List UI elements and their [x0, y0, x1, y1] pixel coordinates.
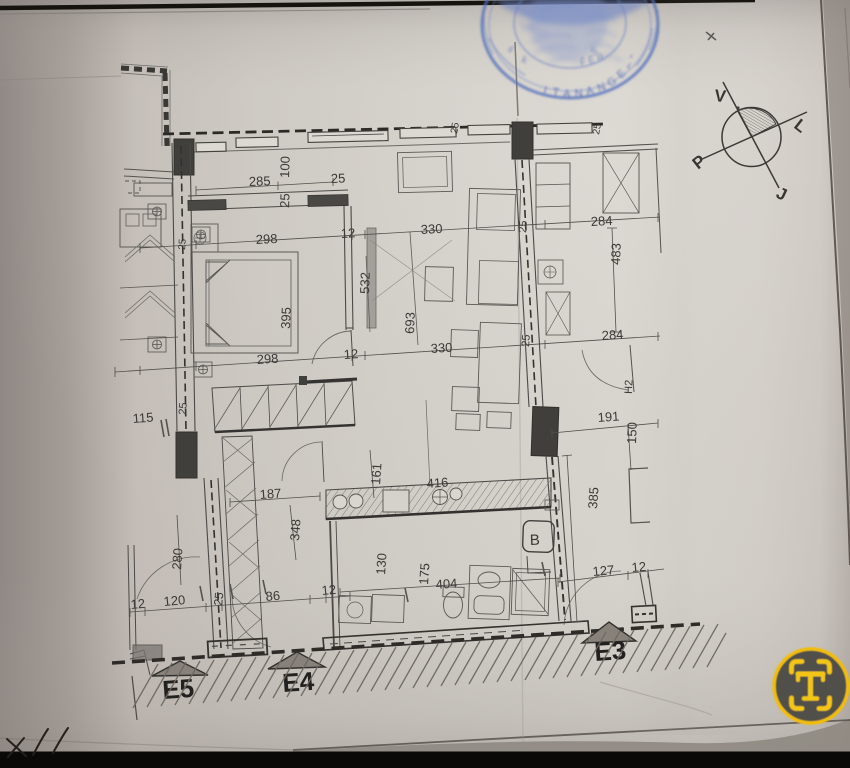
- svg-text:H2: H2: [623, 380, 635, 394]
- svg-text:115: 115: [132, 410, 154, 426]
- svg-text:298: 298: [255, 231, 277, 247]
- svg-text:348: 348: [287, 519, 303, 542]
- svg-text:385: 385: [585, 487, 601, 510]
- svg-text:86: 86: [265, 588, 281, 604]
- svg-text:A: A: [563, 88, 572, 100]
- svg-text:100: 100: [277, 156, 293, 178]
- svg-text:120: 120: [163, 592, 186, 609]
- svg-text:12: 12: [343, 346, 358, 362]
- svg-text:12: 12: [321, 582, 337, 598]
- svg-text:25: 25: [331, 171, 346, 186]
- svg-text:25: 25: [177, 238, 189, 250]
- svg-text:330: 330: [420, 221, 442, 237]
- svg-text:284: 284: [590, 213, 612, 229]
- svg-text:191: 191: [597, 409, 620, 425]
- svg-text:25: 25: [277, 193, 292, 208]
- svg-text:416: 416: [426, 475, 449, 491]
- svg-text:B: B: [530, 532, 541, 549]
- svg-text:404: 404: [435, 576, 458, 592]
- svg-text:187: 187: [259, 486, 282, 502]
- svg-text:N: N: [574, 87, 583, 100]
- svg-text:127: 127: [592, 562, 615, 579]
- svg-text:25: 25: [520, 334, 533, 347]
- svg-text:285: 285: [249, 173, 271, 189]
- svg-text:12: 12: [340, 225, 355, 241]
- svg-text:532: 532: [357, 272, 373, 294]
- svg-text:395: 395: [278, 307, 294, 329]
- svg-text:298: 298: [256, 351, 279, 367]
- svg-text:130: 130: [373, 553, 389, 576]
- svg-text:12: 12: [130, 596, 146, 612]
- svg-text:12: 12: [631, 559, 647, 575]
- svg-text:280: 280: [169, 548, 185, 571]
- svg-text:25: 25: [211, 591, 226, 606]
- svg-text:161: 161: [368, 463, 384, 486]
- svg-text:150: 150: [624, 422, 640, 444]
- svg-text:483: 483: [608, 243, 624, 265]
- svg-text:E4: E4: [281, 666, 315, 698]
- svg-text:25: 25: [177, 402, 190, 415]
- svg-text:284: 284: [601, 327, 624, 343]
- svg-text:693: 693: [402, 312, 418, 334]
- svg-text:25: 25: [517, 220, 530, 233]
- svg-text:330: 330: [430, 340, 453, 356]
- svg-text:175: 175: [416, 563, 432, 586]
